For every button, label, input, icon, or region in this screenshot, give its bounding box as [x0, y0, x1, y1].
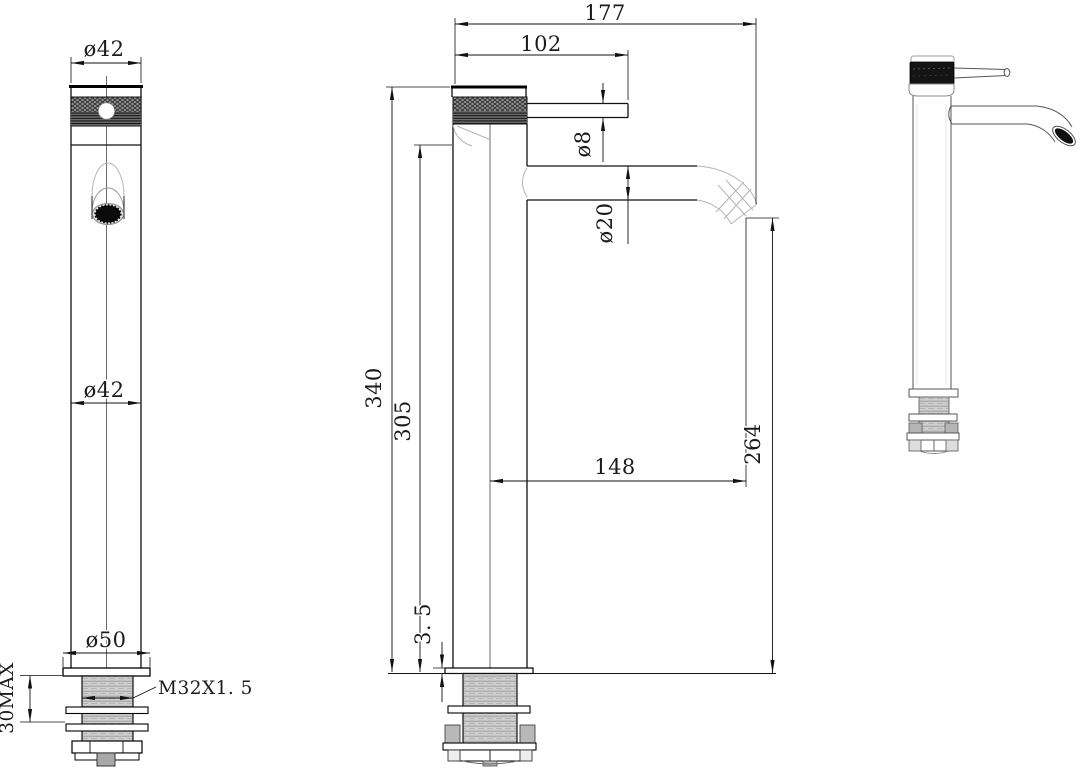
dimension-handle-length: 102 [455, 32, 628, 100]
iso-knurl-knob [910, 62, 954, 84]
dimension-spout-reach: 148 [490, 218, 746, 487]
side-view-body-outline [451, 87, 527, 668]
handle-end-circle [98, 103, 114, 119]
dim-overall-height: 340 [362, 367, 386, 409]
aerator-face [96, 206, 121, 223]
spout-outlet-hatch [716, 180, 753, 219]
dimension-deck-plate-thickness: 3. 5 [411, 603, 450, 702]
front-view-mounting-assembly [63, 668, 150, 766]
front-view: ø42 ø42 ø50 M32X1. 5 30MAX [0, 37, 253, 766]
iso-spout [949, 106, 1079, 149]
dimension-spout-outlet-height: 264 [741, 218, 779, 673]
faucet-technical-drawing: ø42 ø42 ø50 M32X1. 5 30MAX [0, 0, 1088, 768]
dimension-height-to-spout-base: 305 [391, 145, 452, 672]
drawing-canvas: ø42 ø42 ø50 M32X1. 5 30MAX [0, 0, 1088, 768]
iso-lever [954, 68, 1010, 78]
iso-handle [909, 56, 1010, 96]
side-view-mounting-assembly [443, 668, 536, 766]
dim-thread-spec: M32X1. 5 [158, 678, 253, 699]
dimension-overall-height: 340 [362, 87, 450, 672]
dim-handle-length: 102 [520, 32, 562, 56]
mounting-nut [72, 741, 142, 753]
side-view: 177 102 ø8 ø20 340 305 [362, 1, 779, 766]
front-view-knurl-band [71, 97, 141, 126]
dim-spout-diameter: ø20 [593, 203, 617, 244]
dim-front-body-diameter: ø42 [84, 378, 125, 402]
dimension-counter-thickness: 30MAX [0, 662, 65, 734]
dim-spout-reach: 148 [594, 455, 636, 479]
dim-overall-reach: 177 [584, 1, 626, 25]
dim-front-knob-diameter: ø42 [84, 37, 125, 61]
iso-mounting-assembly [907, 389, 959, 454]
iso-body-column [913, 96, 951, 389]
dimension-spout-diameter: ø20 [593, 166, 628, 244]
iso-view [907, 56, 1079, 454]
dimension-front-body-diameter: ø42 [71, 378, 141, 403]
dim-height-to-spout-base: 305 [391, 400, 415, 442]
handle-lever [527, 104, 628, 118]
dim-front-base-diameter: ø50 [86, 628, 127, 652]
dim-counter-thickness-max: 30MAX [0, 662, 18, 734]
spout [527, 166, 757, 224]
dim-spout-outlet-height: 264 [741, 423, 765, 465]
side-view-knurl-band [453, 97, 527, 124]
dimension-front-knob-diameter: ø42 [71, 37, 141, 83]
front-view-spout-outlet [92, 163, 124, 225]
dim-deck-plate-thickness: 3. 5 [411, 603, 435, 645]
dim-handle-diameter: ø8 [571, 130, 595, 157]
dimension-handle-diameter: ø8 [571, 83, 603, 162]
